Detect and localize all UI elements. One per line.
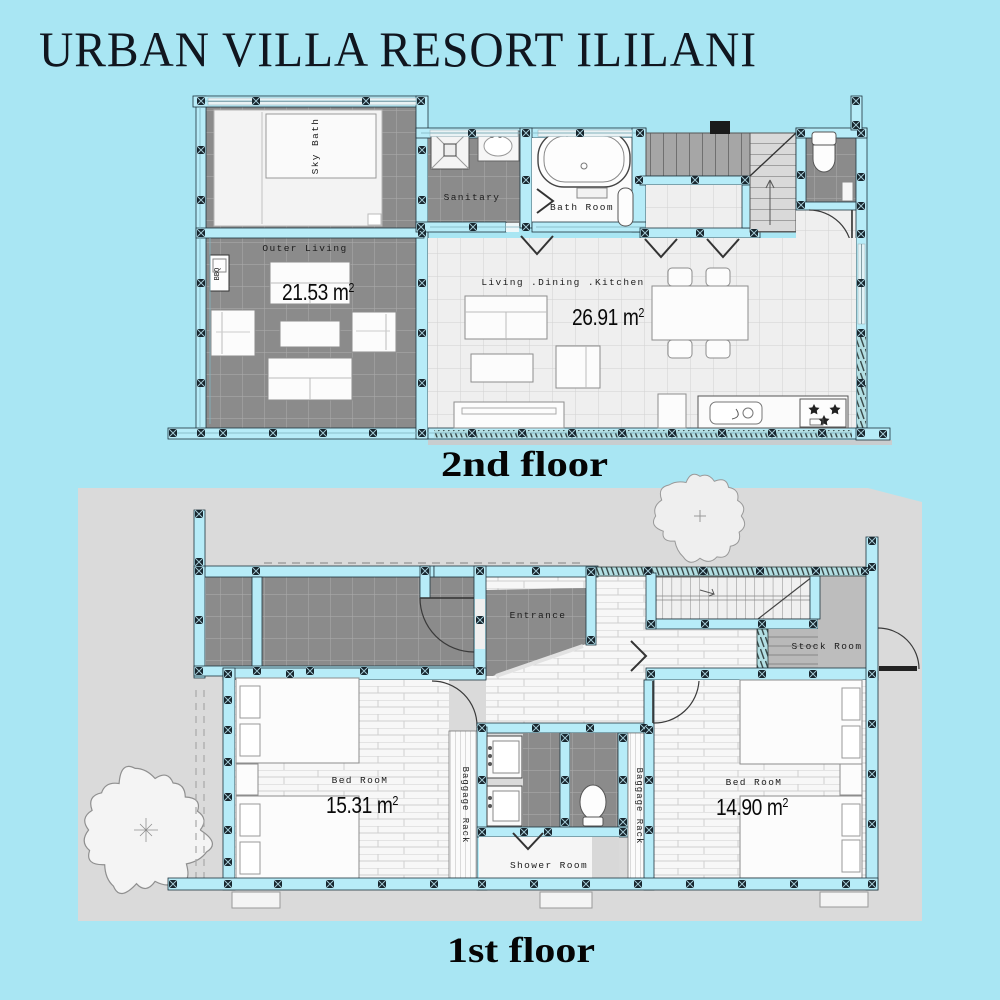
svg-text:Shower Room: Shower Room <box>510 860 588 871</box>
svg-text:Bed RooM: Bed RooM <box>332 775 389 786</box>
svg-text:2nd floor: 2nd floor <box>441 444 608 484</box>
svg-text:Stock Room: Stock Room <box>791 641 862 652</box>
svg-text:15.31 m2: 15.31 m2 <box>326 792 398 818</box>
svg-text:Living .Dining .Kitchen: Living .Dining .Kitchen <box>481 277 644 288</box>
svg-text:Baggage Rack: Baggage Rack <box>460 767 470 844</box>
svg-text:URBAN VILLA RESORT ILILANI: URBAN VILLA RESORT ILILANI <box>39 21 757 77</box>
svg-text:Bath Room: Bath Room <box>550 202 614 213</box>
svg-text:Outer Living: Outer Living <box>262 243 347 254</box>
svg-text:21.53 m2: 21.53 m2 <box>282 279 354 305</box>
svg-text:14.90 m2: 14.90 m2 <box>716 794 788 820</box>
svg-text:Entrance: Entrance <box>510 610 567 621</box>
svg-text:1st floor: 1st floor <box>447 930 595 970</box>
svg-text:Sky Bath: Sky Bath <box>310 118 321 175</box>
svg-text:BBQ: BBQ <box>214 268 222 281</box>
svg-text:26.91 m2: 26.91 m2 <box>572 304 644 330</box>
svg-text:Sanitary: Sanitary <box>444 192 501 203</box>
svg-text:Baggage Rack: Baggage Rack <box>634 768 644 845</box>
svg-text:Bed RooM: Bed RooM <box>726 777 783 788</box>
